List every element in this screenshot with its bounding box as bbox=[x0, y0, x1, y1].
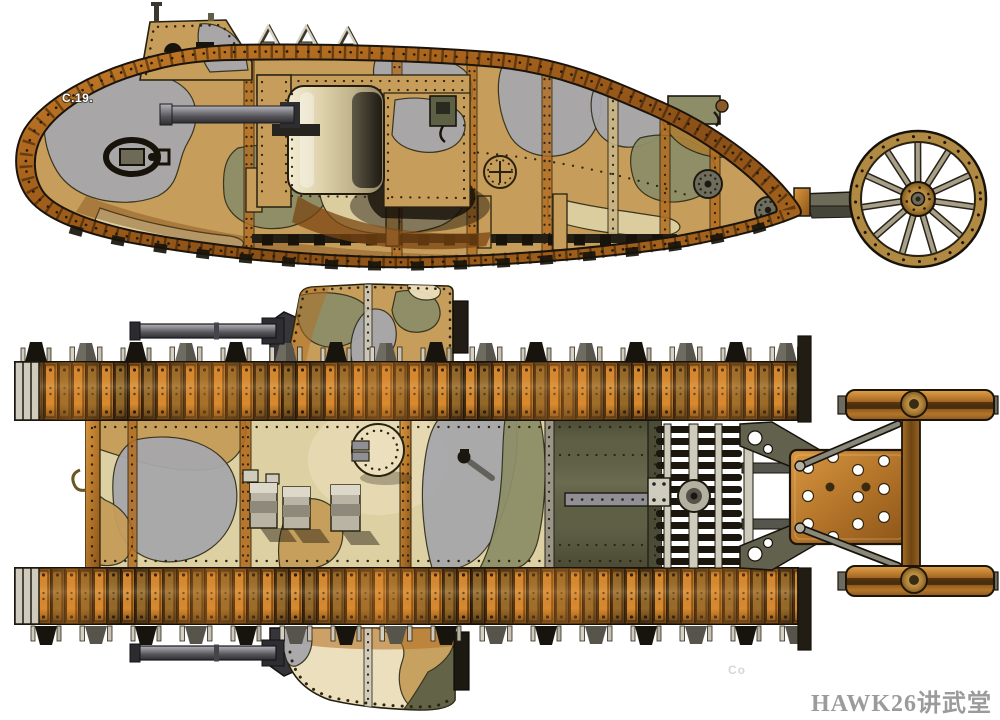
track-end-cap bbox=[798, 336, 811, 422]
gun-barrel bbox=[166, 106, 294, 123]
side-tail-wheel bbox=[850, 131, 986, 267]
tank-marking: C.19. bbox=[62, 91, 93, 105]
plan-track-top bbox=[15, 336, 811, 422]
gun-muzzle bbox=[160, 104, 172, 125]
side-round-hatch bbox=[484, 156, 516, 188]
tail-axle bbox=[902, 418, 920, 570]
cab-mast bbox=[154, 4, 159, 22]
plan-rear-rail bbox=[565, 493, 660, 506]
watermark-text: HAWK26讲武堂 bbox=[811, 690, 992, 717]
sponson-gun-shield-cylinder bbox=[288, 86, 384, 194]
plan-track-bottom bbox=[15, 568, 811, 650]
tank-two-view-illustration: C.19. bbox=[0, 0, 1000, 720]
tail-wheel-top bbox=[838, 390, 998, 420]
illustration-canvas: C.19. bbox=[0, 0, 1000, 720]
track-spuds-row bbox=[15, 340, 798, 362]
track-end-cap bbox=[798, 568, 811, 650]
tail-wheel-bottom bbox=[838, 566, 998, 596]
sponson-front-plate bbox=[257, 75, 291, 207]
plan-deck bbox=[73, 405, 662, 568]
corner-partial-text: Co bbox=[728, 663, 746, 677]
